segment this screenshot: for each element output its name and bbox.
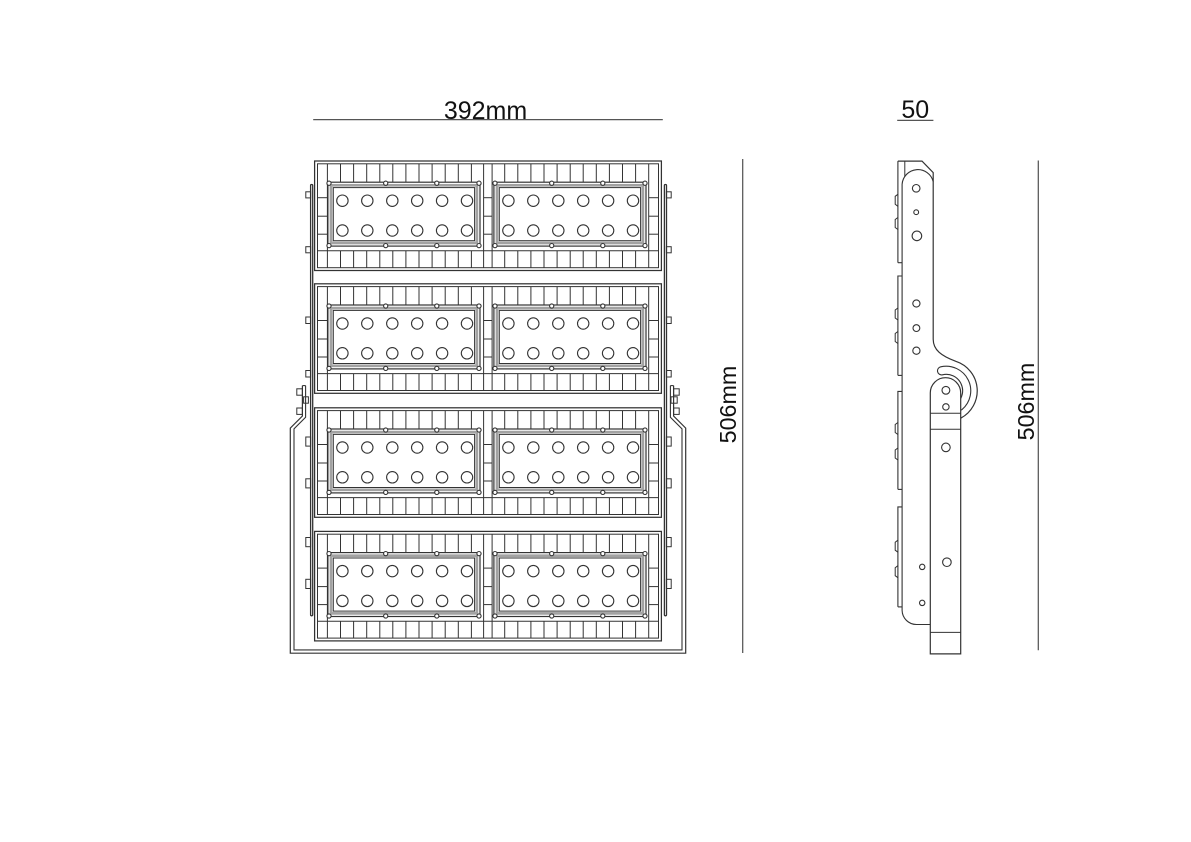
svg-text:392mm: 392mm [444, 97, 527, 125]
svg-text:50: 50 [901, 96, 929, 124]
svg-text:506mm: 506mm [715, 366, 741, 444]
svg-text:506mm: 506mm [1013, 363, 1039, 441]
